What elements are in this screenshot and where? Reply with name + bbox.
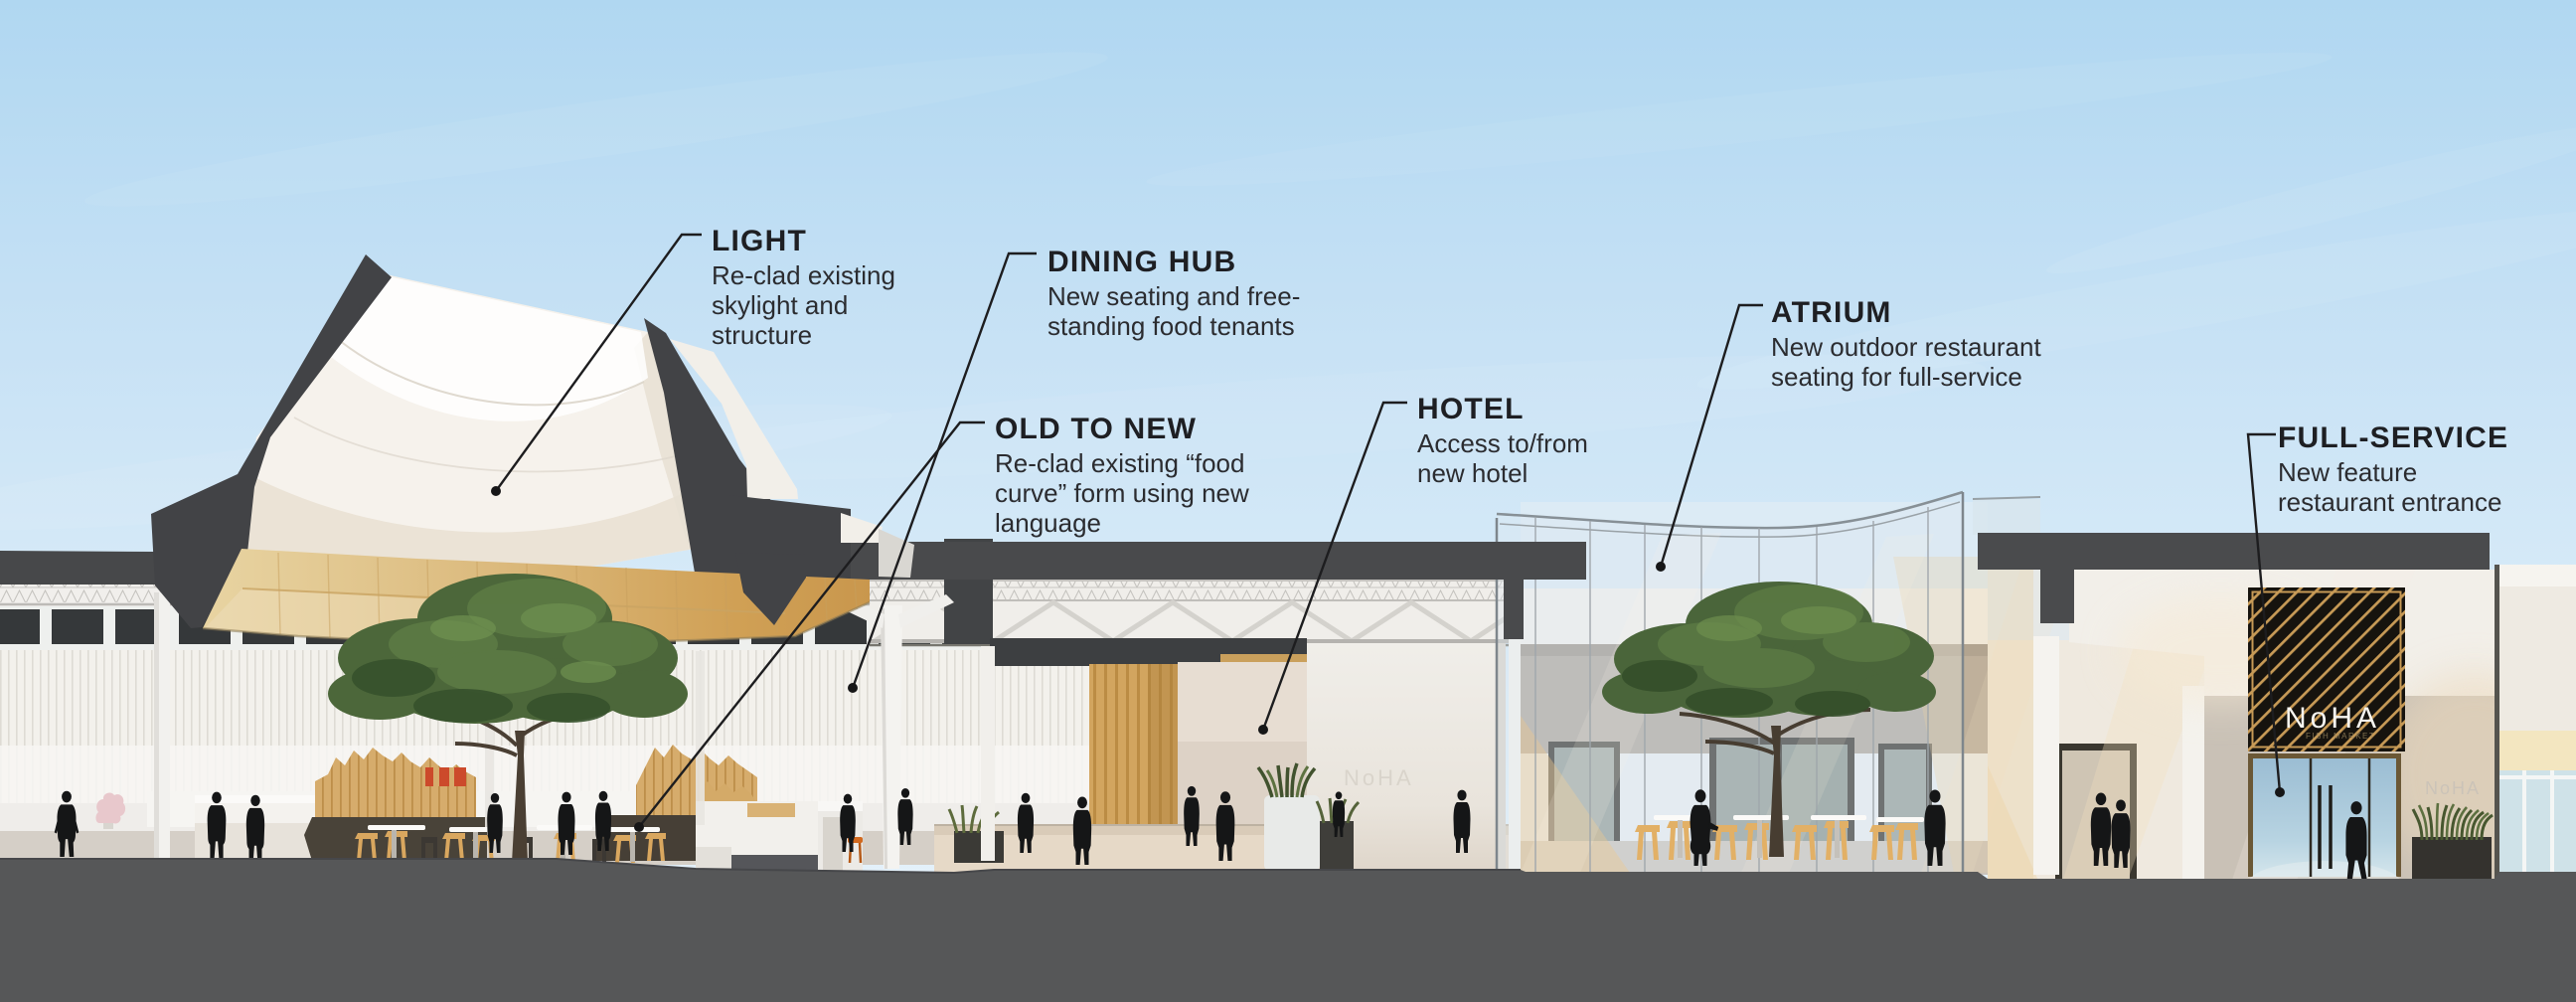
svg-text:NoHA: NoHA (2425, 778, 2481, 798)
svg-text:FISH MARKET: FISH MARKET (2306, 732, 2375, 741)
svg-text:NoHA: NoHA (1344, 765, 1414, 790)
svg-text:NoHA: NoHA (2285, 702, 2380, 735)
